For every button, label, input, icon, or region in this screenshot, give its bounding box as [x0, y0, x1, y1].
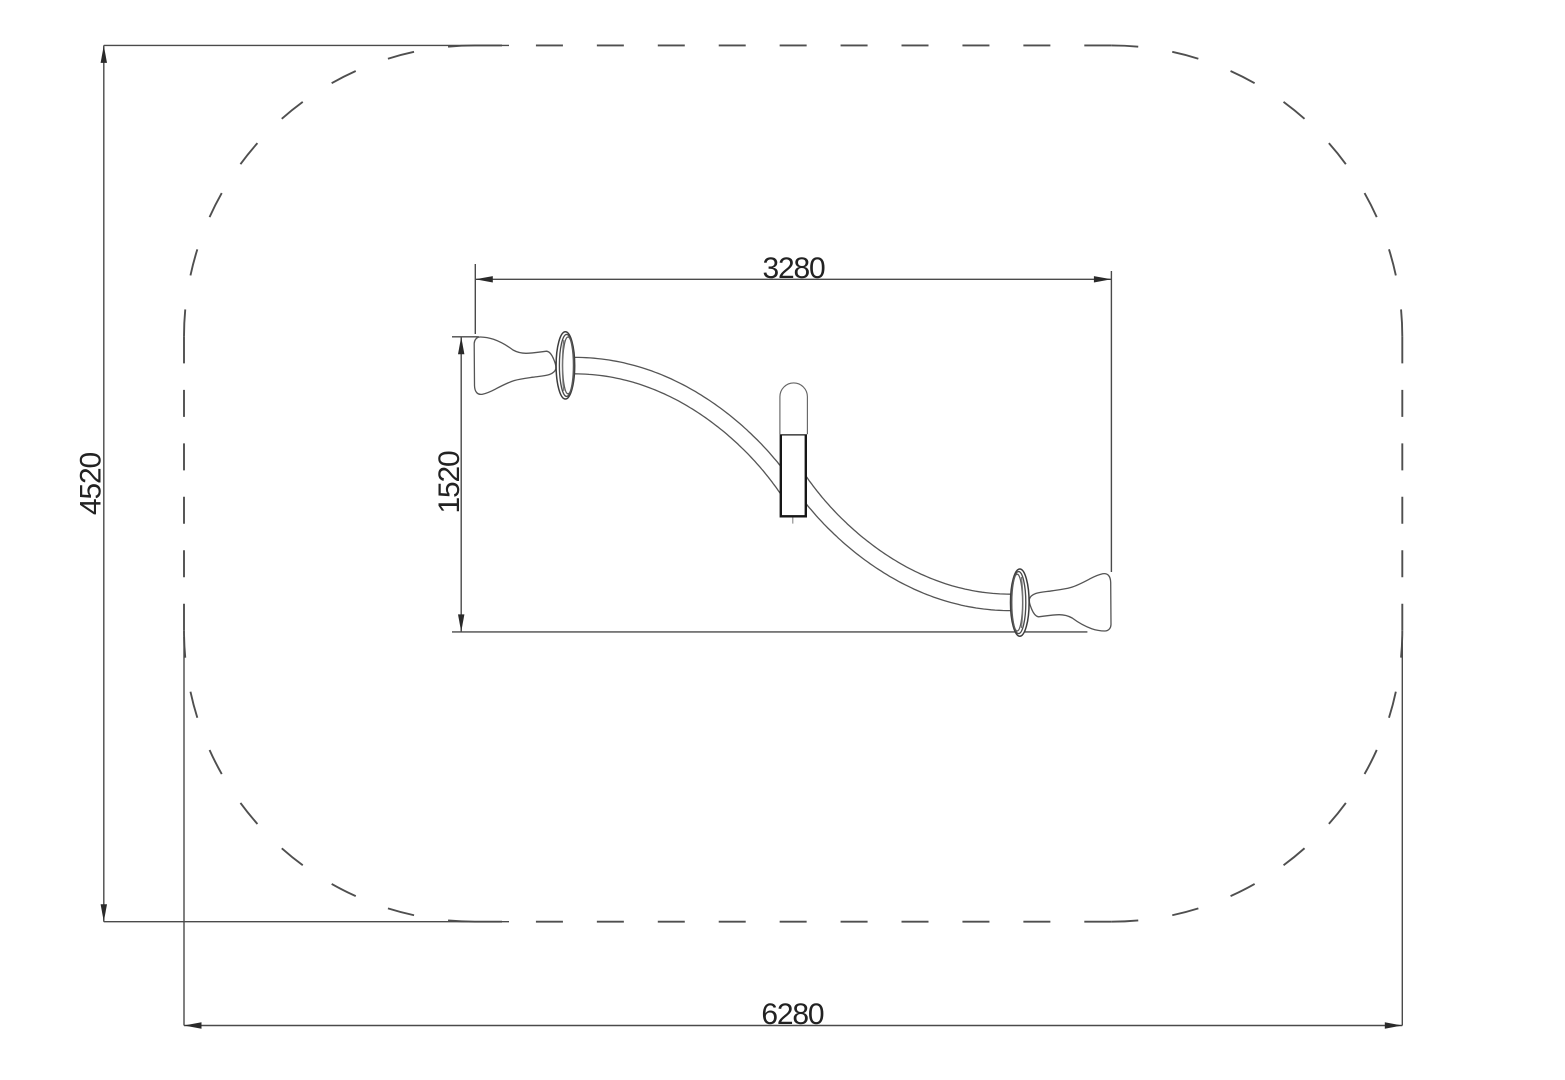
svg-text:3280: 3280	[763, 252, 825, 285]
svg-text:6280: 6280	[761, 998, 823, 1031]
svg-text:1520: 1520	[433, 451, 466, 513]
svg-text:4520: 4520	[75, 453, 108, 515]
